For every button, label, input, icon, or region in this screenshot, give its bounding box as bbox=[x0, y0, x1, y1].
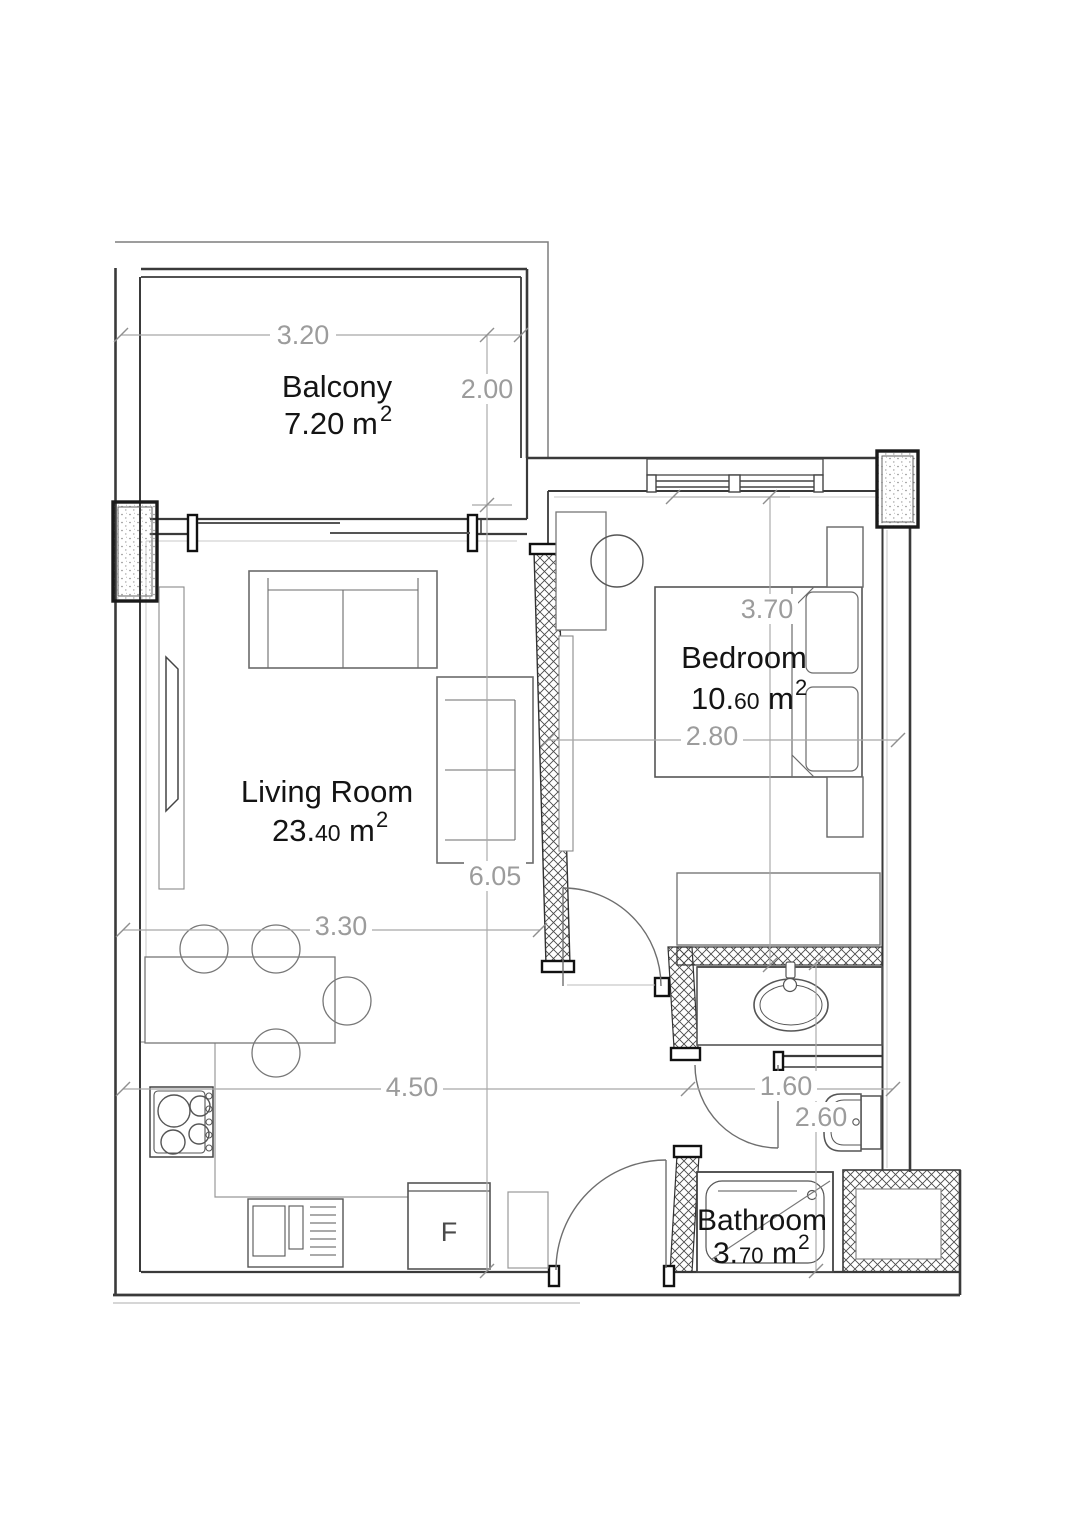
dim-living-width: 3.30 bbox=[315, 911, 368, 941]
svg-text:40: 40 bbox=[315, 820, 341, 846]
bathroom-lower-partition bbox=[670, 1155, 699, 1272]
svg-text:60: 60 bbox=[734, 688, 760, 714]
bedroom-label: Bedroom bbox=[681, 640, 807, 675]
svg-text:2: 2 bbox=[795, 675, 807, 700]
svg-text:2: 2 bbox=[798, 1231, 810, 1254]
stove bbox=[150, 1087, 213, 1157]
nightstand bbox=[827, 777, 863, 837]
bedroom-window bbox=[647, 459, 823, 492]
service-shaft-void bbox=[856, 1189, 941, 1259]
pillow bbox=[806, 592, 858, 673]
dim-bedroom-width: 2.80 bbox=[686, 721, 739, 751]
pillow bbox=[806, 687, 858, 771]
dim-balcony-depth: 2.00 bbox=[461, 374, 514, 404]
dim-living-length: 6.05 bbox=[469, 861, 522, 891]
tv-console bbox=[159, 587, 184, 889]
svg-text:2: 2 bbox=[376, 807, 388, 832]
armchair bbox=[437, 677, 533, 863]
svg-text:m: m bbox=[349, 813, 375, 848]
floor-plan-page: 3.20 2.00 3.70 2.80 6.05 3.30 4.50 1.60 … bbox=[0, 0, 1080, 1540]
bathroom-area: 3. bbox=[713, 1237, 738, 1270]
dining-table bbox=[145, 957, 335, 1043]
sofa bbox=[249, 571, 437, 668]
living-room-label: Living Room bbox=[241, 774, 413, 809]
living-room-area: 23. bbox=[272, 813, 315, 848]
sink-cabinet bbox=[248, 1199, 343, 1267]
svg-text:m: m bbox=[772, 1237, 797, 1270]
room-labels: Balcony 7.20 m 2 Living Room 23. 40 m 2 … bbox=[241, 369, 827, 1270]
living-furniture bbox=[159, 571, 533, 889]
desk bbox=[556, 512, 606, 630]
svg-text:m: m bbox=[768, 681, 794, 716]
openings bbox=[198, 459, 823, 533]
svg-text:2: 2 bbox=[380, 401, 392, 426]
balcony-area: 7.20 bbox=[284, 406, 344, 441]
faucet bbox=[786, 962, 795, 978]
wardrobe bbox=[677, 873, 880, 945]
vanity-sink bbox=[697, 962, 882, 1045]
entry-door bbox=[556, 1160, 666, 1270]
dim-balcony-width: 3.20 bbox=[277, 320, 330, 350]
floor-plan-canvas: 3.20 2.00 3.70 2.80 6.05 3.30 4.50 1.60 … bbox=[0, 0, 1080, 1540]
dim-bathroom-width: 1.60 bbox=[760, 1071, 813, 1101]
bedroom-door bbox=[563, 888, 661, 986]
svg-text:m: m bbox=[352, 406, 378, 441]
dim-kitchen-run: 4.50 bbox=[386, 1072, 439, 1102]
balcony-sliding-door bbox=[198, 523, 470, 533]
dim-bedroom-length: 3.70 bbox=[741, 594, 794, 624]
dining-set bbox=[145, 925, 371, 1077]
tv bbox=[166, 657, 178, 811]
bedroom-area: 10. bbox=[691, 681, 734, 716]
kitchen-cabinet bbox=[508, 1192, 548, 1268]
balcony-label: Balcony bbox=[282, 369, 393, 404]
svg-text:70: 70 bbox=[739, 1243, 763, 1268]
column-east bbox=[877, 451, 918, 527]
column-west bbox=[113, 502, 157, 601]
nightstand bbox=[827, 527, 863, 587]
shelf-strip bbox=[559, 636, 573, 851]
fridge-label: F bbox=[441, 1217, 458, 1247]
dim-bathroom-length: 2.60 bbox=[795, 1102, 848, 1132]
bedroom-bathroom-partition bbox=[677, 947, 882, 965]
